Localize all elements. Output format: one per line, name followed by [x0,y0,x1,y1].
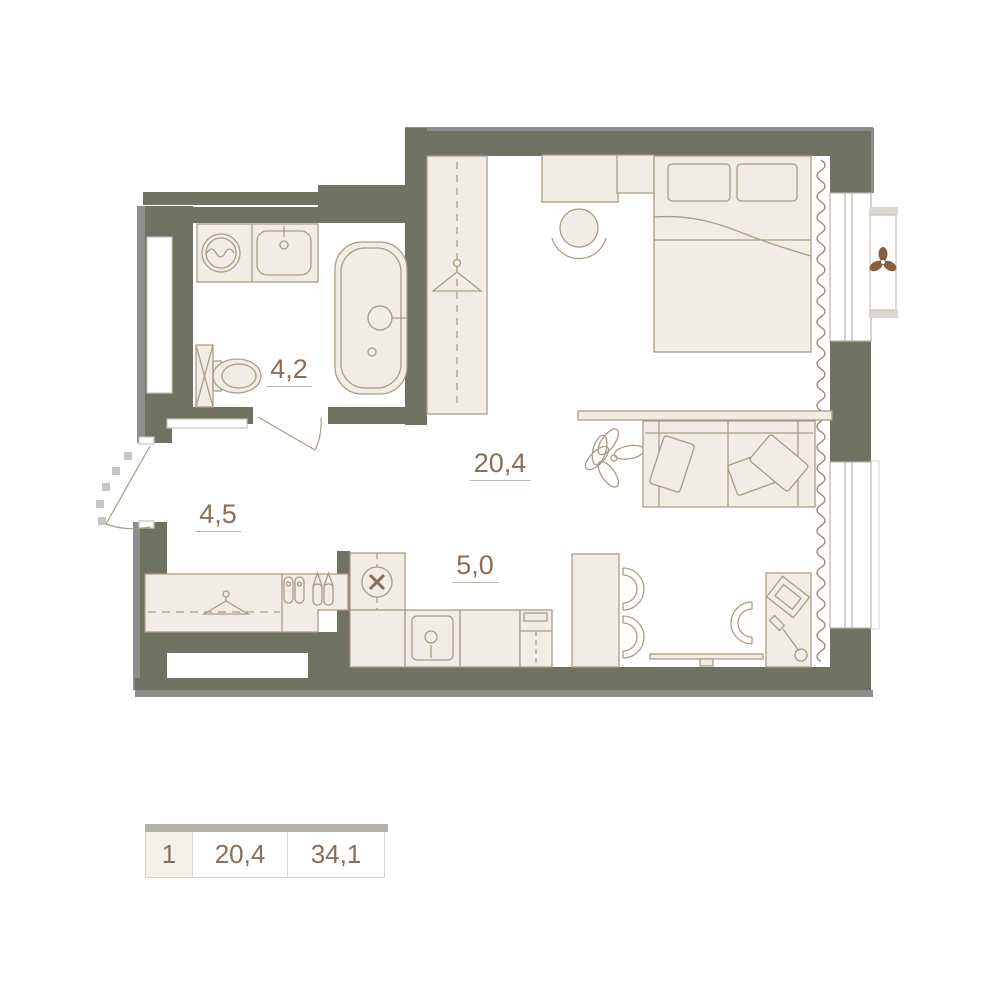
bed [654,156,811,352]
summary-table: 1 20,4 34,1 [145,824,388,878]
area-label-hallway: 4,5 [195,501,241,532]
total-area-cell: 34,1 [288,832,384,877]
entry-door [106,437,154,529]
wall-niche [147,237,172,393]
hallway-wardrobe [145,573,348,632]
dining-table [572,554,619,667]
ac-unit [868,207,898,318]
toilet [196,345,261,407]
sofa [643,421,815,507]
kitchen-counter [460,610,520,667]
plant-icon [582,426,645,490]
bathroom-door [258,417,321,450]
kitchen-units [350,553,552,667]
dining-chair [623,616,644,658]
kitchen-tall-unit [350,553,405,610]
summary-table-row: 1 20,4 34,1 [145,832,385,878]
wall-shelf [578,411,832,420]
threshold [167,419,247,428]
bedroom-chair [552,209,606,259]
hob-icon [362,567,392,597]
kitchen-oven-unit [520,610,552,667]
bathtub [335,242,407,394]
kitchen-corner-unit [350,610,405,667]
floor-plan: 4,2 4,5 20,4 5,0 1 20,4 34,1 [0,0,1000,1000]
area-label-bathroom: 4,2 [266,356,312,387]
window-top [830,193,871,341]
dining-chair [623,568,644,610]
nightstand [617,155,654,193]
office-chair [731,602,752,644]
unit-number-cell: 1 [146,832,193,877]
kitchen-sink-unit [405,610,460,667]
living-area-cell: 20,4 [193,832,288,877]
tv-stand [650,654,763,666]
window-bottom [830,461,879,629]
summary-table-bar [145,824,388,832]
coat-closet [427,156,487,414]
area-label-living-room: 20,4 [470,450,531,481]
desk [766,573,811,667]
area-label-kitchen: 5,0 [452,552,498,583]
dresser [542,155,618,202]
